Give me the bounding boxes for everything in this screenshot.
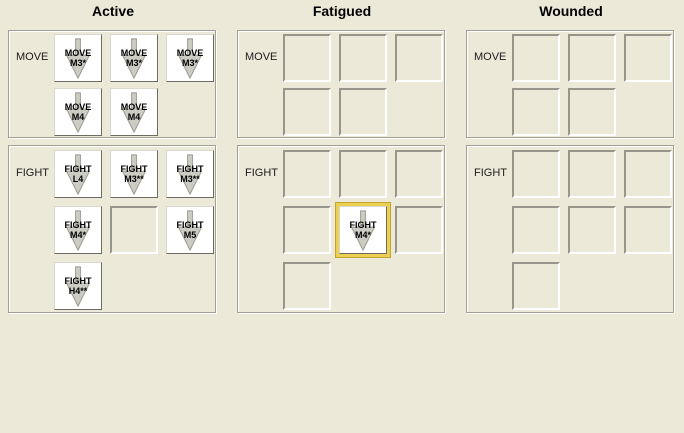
action-chit[interactable]: FIGHTM3**	[110, 150, 158, 198]
action-chit[interactable]: FIGHTM4*	[54, 206, 102, 254]
empty-chit-slot	[512, 262, 560, 310]
chit-label: FIGHTM4*	[350, 220, 377, 240]
chit-cell: FIGHTM3**	[110, 150, 158, 198]
empty-cell	[395, 88, 443, 136]
empty-chit-slot	[395, 34, 443, 82]
action-chit[interactable]: FIGHTM5	[166, 206, 214, 254]
panel-title: Wounded	[466, 3, 676, 19]
empty-cell	[568, 262, 616, 310]
chit-label: FIGHTM3**	[121, 164, 148, 184]
chit-cell: MOVEM3*	[54, 34, 102, 82]
empty-chit-slot	[624, 206, 672, 254]
chit-cell: FIGHTM5	[166, 206, 214, 254]
action-chit[interactable]: FIGHTM3**	[166, 150, 214, 198]
empty-chit-slot	[568, 150, 616, 198]
empty-chit-slot	[283, 88, 331, 136]
fight-section: FIGHT FIGHTM4*	[237, 145, 445, 313]
action-chit[interactable]: MOVEM3*	[166, 34, 214, 82]
panel-active: Active MOVE MOVEM3*MOVEM3*MOVEM3*MOVEM4M…	[8, 0, 218, 433]
chit-label: FIGHTH4**	[65, 276, 92, 296]
chit-grid: MOVEM3*MOVEM3*MOVEM3*MOVEM4MOVEM4	[54, 31, 214, 136]
chit-label: MOVEM3*	[121, 48, 148, 68]
empty-chit-slot	[339, 88, 387, 136]
chit-row: FIGHTM4*	[283, 206, 443, 254]
chit-row	[512, 150, 672, 198]
panel-title: Active	[8, 3, 218, 19]
panel-title: Fatigued	[237, 3, 447, 19]
chit-label: MOVEM4	[121, 102, 148, 122]
empty-cell	[624, 262, 672, 310]
chit-row: MOVEM4MOVEM4	[54, 88, 214, 136]
empty-chit-slot	[512, 206, 560, 254]
action-chit[interactable]: MOVEM3*	[110, 34, 158, 82]
action-chit[interactable]: MOVEM4	[54, 88, 102, 136]
panel-wounded: Wounded MOVE FIGHT	[466, 0, 676, 433]
chit-cell: FIGHTL4	[54, 150, 102, 198]
empty-chit-slot	[568, 34, 616, 82]
empty-chit-slot	[512, 88, 560, 136]
chit-cell: FIGHTM3**	[166, 150, 214, 198]
chit-row: FIGHTH4**	[54, 262, 214, 310]
empty-chit-slot	[283, 206, 331, 254]
chit-cell: MOVEM3*	[110, 34, 158, 82]
chit-cell: MOVEM3*	[166, 34, 214, 82]
move-section: MOVE MOVEM3*MOVEM3*MOVEM3*MOVEM4MOVEM4	[8, 30, 216, 138]
chit-grid	[512, 146, 672, 310]
chit-row	[283, 34, 443, 82]
chit-row	[512, 206, 672, 254]
section-label: FIGHT	[474, 167, 507, 179]
empty-cell	[624, 88, 672, 136]
empty-chit-slot	[512, 150, 560, 198]
empty-chit-slot	[283, 150, 331, 198]
chit-grid	[283, 31, 443, 136]
empty-chit-slot	[395, 206, 443, 254]
chit-cell: MOVEM4	[54, 88, 102, 136]
empty-cell	[339, 262, 387, 310]
action-chit-selected[interactable]: FIGHTM4*	[339, 206, 387, 254]
move-section: MOVE	[466, 30, 674, 138]
empty-cell	[166, 262, 214, 310]
chit-label: MOVEM3*	[177, 48, 204, 68]
empty-chit-slot	[283, 262, 331, 310]
action-chit[interactable]: MOVEM3*	[54, 34, 102, 82]
panel-fatigued: Fatigued MOVE FIGHT FIGHTM4*	[237, 0, 447, 433]
chit-cell: MOVEM4	[110, 88, 158, 136]
empty-chit-slot	[624, 150, 672, 198]
chit-label: MOVEM4	[65, 102, 92, 122]
empty-cell	[395, 262, 443, 310]
chit-grid	[512, 31, 672, 136]
chit-row	[512, 34, 672, 82]
action-chit[interactable]: FIGHTL4	[54, 150, 102, 198]
chit-row	[283, 88, 443, 136]
chit-grid: FIGHTM4*	[283, 146, 443, 310]
empty-cell	[166, 88, 214, 136]
chit-label: FIGHTM3**	[177, 164, 204, 184]
empty-chit-slot	[339, 150, 387, 198]
chit-label: FIGHTM4*	[65, 220, 92, 240]
chit-grid: FIGHTL4FIGHTM3**FIGHTM3**FIGHTM4*FIGHTM5…	[54, 146, 214, 310]
section-label: FIGHT	[245, 167, 278, 179]
chit-row	[283, 150, 443, 198]
chit-label: FIGHTL4	[65, 164, 92, 184]
section-label: MOVE	[474, 51, 506, 63]
chit-label: MOVEM3*	[65, 48, 92, 68]
empty-chit-slot	[395, 150, 443, 198]
fight-section: FIGHT	[466, 145, 674, 313]
chit-row	[512, 262, 672, 310]
move-section: MOVE	[237, 30, 445, 138]
empty-chit-slot	[624, 34, 672, 82]
chit-label: FIGHTM5	[177, 220, 204, 240]
chit-row	[512, 88, 672, 136]
section-label: MOVE	[245, 51, 277, 63]
chit-cell: FIGHTH4**	[54, 262, 102, 310]
chit-cell: FIGHTM4*	[339, 206, 387, 254]
section-label: FIGHT	[16, 167, 49, 179]
action-chit[interactable]: MOVEM4	[110, 88, 158, 136]
fight-section: FIGHT FIGHTL4FIGHTM3**FIGHTM3**FIGHTM4*F…	[8, 145, 216, 313]
chit-row: FIGHTM4*FIGHTM5	[54, 206, 214, 254]
empty-cell	[110, 262, 158, 310]
empty-chit-slot	[339, 34, 387, 82]
action-chit[interactable]: FIGHTH4**	[54, 262, 102, 310]
empty-chit-slot	[110, 206, 158, 254]
empty-chit-slot	[568, 206, 616, 254]
chit-cell: FIGHTM4*	[54, 206, 102, 254]
empty-chit-slot	[568, 88, 616, 136]
empty-chit-slot	[283, 34, 331, 82]
section-label: MOVE	[16, 51, 48, 63]
chit-row	[283, 262, 443, 310]
chit-row: FIGHTL4FIGHTM3**FIGHTM3**	[54, 150, 214, 198]
chit-row: MOVEM3*MOVEM3*MOVEM3*	[54, 34, 214, 82]
empty-chit-slot	[512, 34, 560, 82]
